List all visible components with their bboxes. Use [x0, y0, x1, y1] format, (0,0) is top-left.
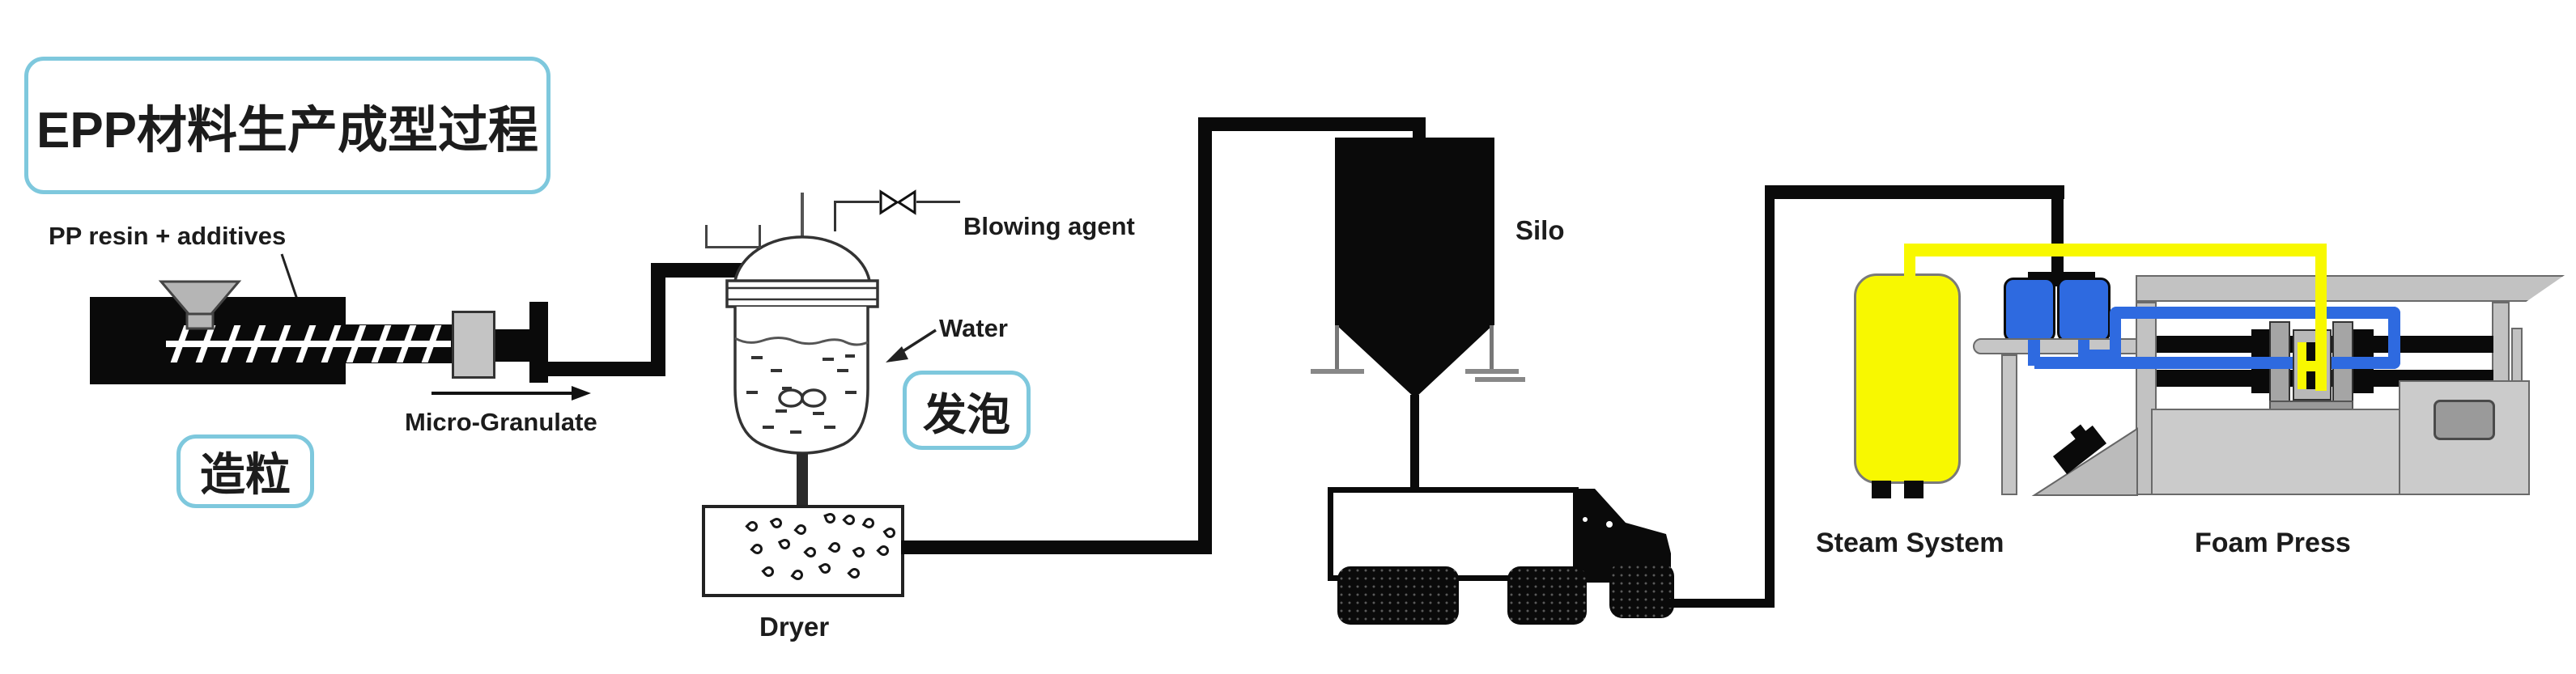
blowing-agent-pipe-h2 [916, 201, 960, 203]
page-title: EPP材料生产成型过程 [36, 89, 538, 162]
autoclave-vessel [695, 184, 891, 510]
droplet-icon [761, 564, 776, 579]
water-pipe-upper-run [2110, 307, 2400, 319]
screw-flight [296, 325, 317, 362]
pipe-silo-riser [1198, 117, 1212, 554]
dome-port-right [759, 225, 761, 248]
water-label: Water [939, 314, 1008, 343]
press-right-post [2492, 302, 2510, 382]
droplet-icon [790, 567, 805, 582]
vessel-dome [735, 237, 869, 281]
press-right-post2 [2511, 328, 2523, 382]
extruder-coupling [452, 311, 495, 379]
droplet-icon [793, 522, 808, 536]
extruder-shaft [495, 329, 529, 362]
pp-resin-label: PP resin + additives [49, 222, 286, 251]
silo-outlet-pipe [1410, 395, 1419, 492]
droplet-icon [818, 562, 833, 576]
blowing-agent-label: Blowing agent [963, 212, 1135, 241]
press-top-beam [2136, 275, 2565, 302]
truck-wheels-rear [1337, 566, 1459, 625]
screw-flight [422, 325, 442, 362]
silo-leg-right [1490, 325, 1494, 371]
water-pipe-up [2110, 318, 2121, 361]
pipe-press-top [1765, 185, 2064, 199]
droplet-icon [750, 541, 764, 556]
silo-foot-left [1311, 369, 1364, 374]
pipe-press-riser [1765, 185, 1775, 608]
water-tank-left [2004, 278, 2055, 342]
dryer-droplets [705, 508, 901, 594]
steam-pipe-h [1904, 244, 2327, 256]
steam-pipe-mold-drop [2315, 244, 2327, 391]
screw-flight [321, 325, 342, 362]
silo-label: Silo [1515, 215, 1565, 246]
pipe-silo-top [1198, 117, 1426, 131]
press-body-left [2151, 409, 2400, 495]
droplet-icon [827, 540, 842, 554]
silo-leg-left [1335, 325, 1339, 371]
dome-port-left [705, 225, 708, 248]
micro-granulate-arrow-icon [429, 385, 599, 403]
water-pipe-right-side [2388, 307, 2400, 369]
droplet-icon [803, 545, 818, 559]
pipe-ground-h [1666, 599, 1773, 608]
water-arrow-icon [881, 324, 946, 371]
truck-wheels-mid [1507, 566, 1587, 625]
water-tank-right [2057, 278, 2111, 342]
silo-body [1335, 138, 1494, 325]
press-panel [2434, 400, 2495, 440]
foaming-label: 发泡 [923, 379, 1010, 443]
hopper-icon [158, 278, 242, 332]
shelf-leg [2001, 354, 2017, 495]
title-box: EPP材料生产成型过程 [24, 57, 550, 194]
droplet-icon [745, 519, 759, 533]
vessel-flange [727, 281, 878, 307]
silo-cone [1335, 324, 1494, 398]
silo-ground-bar [1475, 377, 1525, 382]
valve-icon [879, 190, 916, 214]
steam-system-label: Steam System [1816, 528, 2004, 559]
blowing-agent-pipe-h1 [834, 201, 879, 203]
blowing-agent-pipe-v [834, 202, 836, 231]
pipe-press-drop [2051, 185, 2064, 276]
screw-flight [372, 325, 392, 362]
pipe-extruder-v [651, 263, 665, 376]
dryer-label: Dryer [759, 612, 829, 642]
droplet-icon [770, 516, 784, 531]
steam-tank-foot-left [1872, 481, 1891, 498]
droplet-icon [847, 566, 861, 580]
impeller-blade-right [802, 390, 825, 406]
steam-tank [1854, 273, 1961, 484]
bushing-right-upper [2353, 329, 2374, 359]
screw-flight [271, 325, 291, 362]
screw-flight [346, 325, 367, 362]
epp-process-diagram: EPP材料生产成型过程 PP resin + additives Micro-G… [0, 0, 2576, 674]
dome-port-bottom [705, 246, 761, 248]
droplet-icon [876, 543, 891, 557]
dryer-box [702, 505, 904, 597]
droplet-icon [882, 525, 897, 540]
micro-granulate-label: Micro-Granulate [405, 408, 597, 437]
pipe-dryer-h [901, 540, 1210, 554]
droplet-icon [852, 545, 867, 560]
granulation-box: 造粒 [176, 434, 314, 508]
vessel-outlet-pipe [797, 453, 808, 508]
granulation-label: 造粒 [200, 439, 291, 504]
screw-flight [397, 325, 417, 362]
pipe-extruder-h1 [542, 362, 662, 376]
screw-flight [246, 325, 266, 362]
foam-press-label: Foam Press [2195, 528, 2351, 559]
droplet-icon [862, 516, 877, 531]
truck-wheels-front [1609, 563, 1674, 618]
droplet-icon [778, 537, 792, 551]
droplet-icon [823, 511, 837, 525]
droplet-icon [842, 512, 857, 527]
steam-tank-foot-right [1904, 481, 1923, 498]
foaming-box: 发泡 [903, 371, 1031, 450]
impeller-blade-left [780, 390, 802, 406]
silo-foot-right [1465, 369, 1519, 374]
